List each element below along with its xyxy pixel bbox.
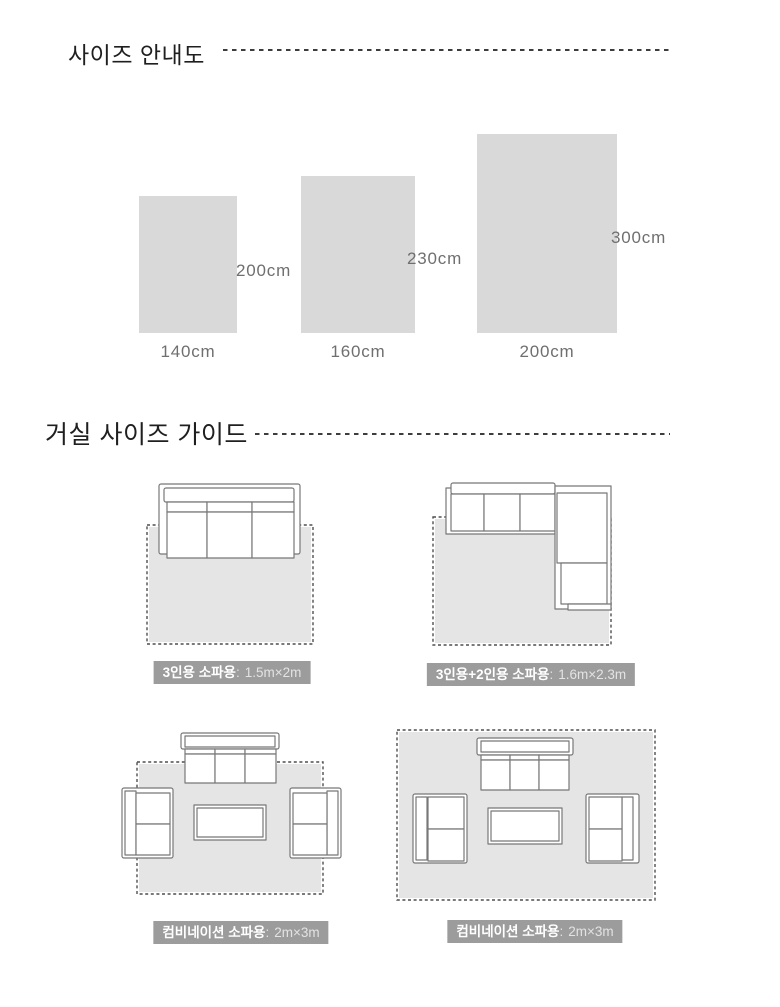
diagram-3seater [147,484,313,644]
caption-colon: : [559,924,563,939]
caption-colon: : [549,667,553,682]
diagram-combination-large [397,730,655,900]
diagram-sectional [433,483,611,645]
sofa-3seater [477,738,573,790]
layout-size: 2m×3m [568,924,613,939]
caption-colon: : [265,925,269,940]
sofa-2seater-left [413,794,467,863]
sofa-3seater [446,483,555,534]
sofa-2seater-chaise [555,486,611,610]
layout-caption: 컴비네이션 소파용:2m×3m [153,921,328,944]
layout-caption: 3인용 소파용:1.5m×2m [154,661,311,684]
sofa-2seater-right [586,794,639,863]
layout-size: 2m×3m [274,925,319,940]
layout-name: 3인용 소파용 [163,665,236,680]
sofa-2seater-right [290,788,341,858]
rug-size-guide-page: 사이즈 안내도 200cm 230cm 300cm 140cm 160cm 20… [0,0,780,1007]
sofa-2seater-left [122,788,173,858]
layout-caption: 3인용+2인용 소파용:1.6m×2.3m [427,663,635,686]
layout-size: 1.5m×2m [245,665,302,680]
sofa-3seater [159,484,300,558]
layout-name: 컴비네이션 소파용 [162,925,265,940]
layout-size: 1.6m×2.3m [558,667,626,682]
coffee-table [194,805,266,840]
layout-name: 컴비네이션 소파용 [456,924,559,939]
diagram-combination-small [122,733,341,894]
sofa-3seater [181,733,279,783]
layout-name: 3인용+2인용 소파용 [436,667,550,682]
caption-colon: : [236,665,240,680]
coffee-table [488,808,562,844]
layout-caption: 컴비네이션 소파용:2m×3m [447,920,622,943]
living-room-diagrams [0,0,780,1007]
